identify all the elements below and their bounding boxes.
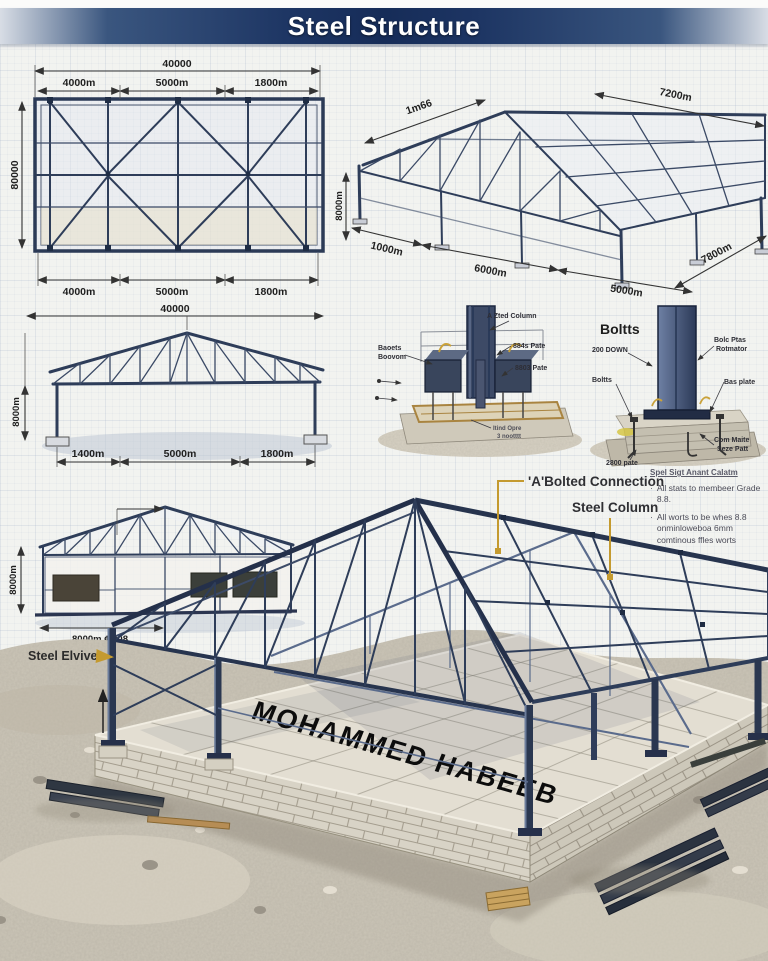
detail2-label-bolts: Boltts [592, 377, 612, 384]
bullet-dot: · [650, 483, 653, 506]
note-item-1: · All stats to membeer Grade 8.8. [650, 483, 766, 506]
iso-view-drawing: 1m66 7200m 8000m 1000m 6000m 5000m 7800m [340, 78, 768, 303]
note-item-2-text: All worts to be whes 8.8 onminloweboa 6m… [657, 512, 766, 546]
detail1-label-bolts-line2: Boovom [378, 354, 406, 361]
detail2-label-plan-line2: Rotmator [716, 346, 747, 353]
detail1-label-plate2: 8803 Pate [515, 365, 547, 372]
title-banner: Steel Structure [0, 8, 768, 44]
iso-dim-left: 8000m [334, 191, 345, 221]
plan-dim-top-3: 1800m [255, 77, 288, 89]
callout-steel-column: Steel Column [572, 500, 658, 515]
detail1-note-line1: Itind Opre [493, 426, 522, 432]
plan-dim-overall: 40000 [162, 58, 191, 70]
plan-dim-top-1: 4000m [63, 77, 96, 89]
detail2-label-plan-line1: Bolc Ptas [714, 337, 746, 344]
detail2-label-conc-line1: Com Maite [714, 437, 750, 444]
plan-frame [35, 97, 323, 251]
plan-dim-bottom-3: 1800m [255, 286, 288, 298]
banner-divider [0, 44, 768, 47]
detail2-column [644, 306, 710, 419]
iso-roof-grid [363, 112, 765, 230]
truss-view-drawing: 40000 8000m 1400m 5000m 1800m [5, 300, 340, 472]
truss-dim-left: 8000m [11, 397, 22, 427]
page-title: Steel Structure [288, 11, 480, 42]
iso-dim-right: 7800m [699, 240, 734, 266]
bolts-detail-drawing: Boltts 200 DOWN Boltts Bolc Ptas Rotmato… [588, 300, 768, 472]
steel-structure-poster: Steel Structure [0, 0, 768, 961]
detail1-label-column: A Zted Column [487, 313, 537, 320]
truss-frame [46, 333, 327, 446]
detail2-label-down: 200 DOWN [592, 347, 628, 354]
detail2-label-base: Bas plate [724, 379, 755, 386]
detail1-note-line2: 3 nootttt [497, 434, 521, 440]
iso-dim-top-right: 7200m [658, 86, 692, 104]
detail1-label-plate1: 884s Pate [513, 343, 545, 350]
detail1-label-bolts-line1: Baoets [378, 345, 401, 352]
callout-bolted-connection: 'A'Bolted Connection [528, 474, 664, 489]
plan-view-drawing: 40000 4000m 5000m 1800m 4000m 5000m 1800… [10, 55, 340, 300]
note-item-1-text: All stats to membeer Grade 8.8. [657, 483, 766, 506]
plan-dim-bottom-1: 4000m [63, 286, 96, 298]
callout-steel-elevation: Steel Elviven [28, 649, 105, 663]
notes-heading: Spel Sigt Anant Calatm [650, 468, 766, 477]
base-detail-drawing: Baoets Boovom A Zted Column 884s Pate 88… [375, 302, 590, 462]
plan-dim-bottom-2: 5000m [156, 286, 189, 298]
iso-dim-bottom-1: 1000m [369, 240, 404, 259]
iso-dim-bottom-3: 5000m [609, 283, 643, 300]
note-item-2: · All worts to be whes 8.8 onminloweboa … [650, 512, 766, 546]
detail2-title: Boltts [600, 321, 640, 337]
truss-dim-overall: 40000 [160, 303, 189, 315]
plan-dim-left: 80000 [9, 160, 21, 189]
iso-dim-bottom-2: 6000m [473, 262, 507, 279]
top-margin [0, 0, 768, 8]
iso-dim-slope: 1m66 [404, 97, 433, 117]
notes-block: Spel Sigt Anant Calatm · All stats to me… [650, 468, 766, 552]
plan-dim-top-2: 5000m [156, 77, 189, 89]
bullet-dot: · [650, 512, 653, 546]
